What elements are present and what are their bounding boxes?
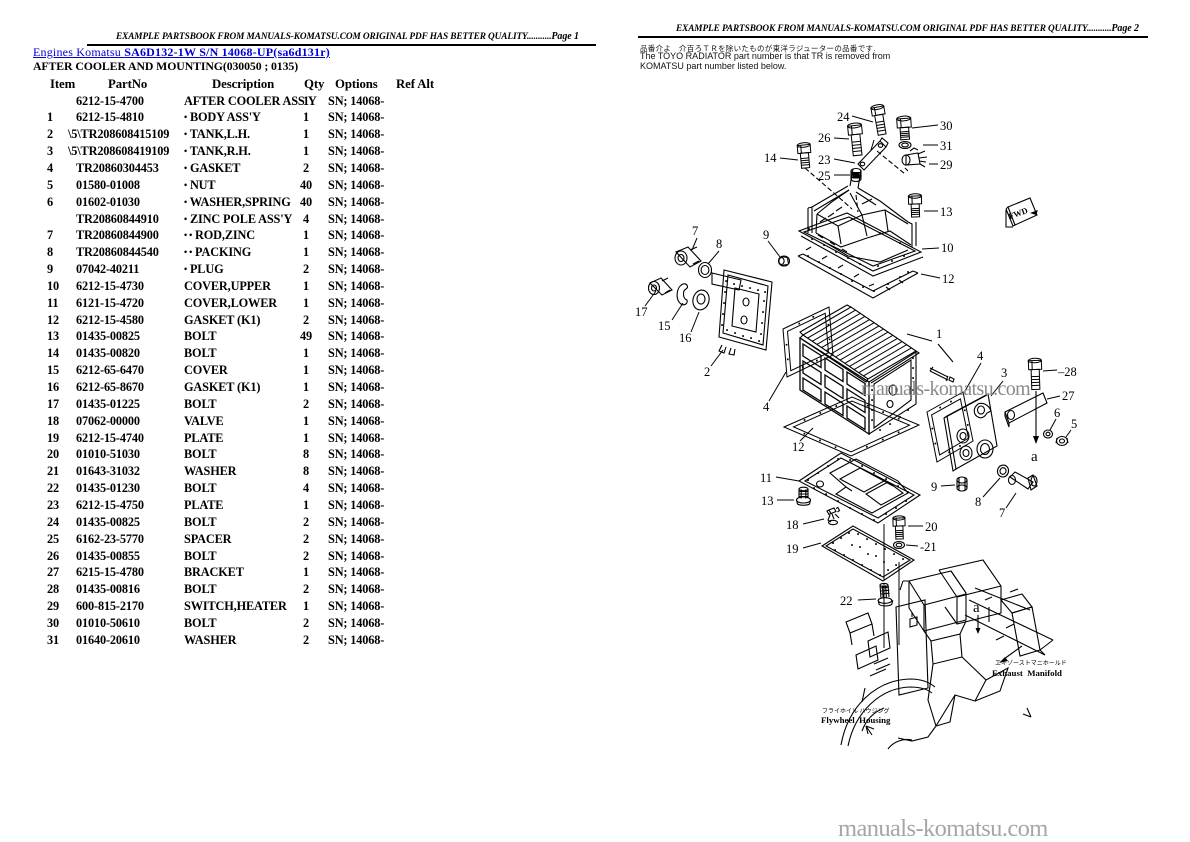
svg-text:manuals-komatsu.com: manuals-komatsu.com <box>861 378 1031 400</box>
svg-text:11: 11 <box>760 471 772 485</box>
svg-text:12: 12 <box>942 272 955 286</box>
svg-text:-21: -21 <box>920 540 937 554</box>
svg-text:7: 7 <box>999 506 1005 520</box>
svg-text:フライホイル ハウジング: フライホイル ハウジング <box>822 707 890 715</box>
svg-text:a: a <box>1031 449 1038 465</box>
svg-text:16: 16 <box>679 331 692 345</box>
svg-text:8: 8 <box>975 495 981 509</box>
svg-text:22: 22 <box>840 594 853 608</box>
svg-text:17: 17 <box>635 305 648 319</box>
svg-text:18: 18 <box>786 518 799 532</box>
svg-text:30: 30 <box>940 119 953 133</box>
svg-text:5: 5 <box>1071 417 1077 431</box>
svg-text:a: a <box>973 600 980 616</box>
svg-text:27: 27 <box>1062 389 1075 403</box>
svg-text:Flywheel Housing: Flywheel Housing <box>821 715 891 725</box>
svg-text:14: 14 <box>764 151 777 165</box>
svg-text:4: 4 <box>977 349 984 363</box>
svg-text:12: 12 <box>792 440 805 454</box>
svg-text:13: 13 <box>940 205 953 219</box>
svg-text:6: 6 <box>1054 406 1060 420</box>
svg-text:19: 19 <box>786 542 799 556</box>
svg-text:エキゾーストマニホールド: エキゾーストマニホールド <box>995 660 1067 667</box>
svg-text:1: 1 <box>936 327 942 341</box>
svg-text:26: 26 <box>818 131 831 145</box>
svg-text:FWD: FWD <box>1007 205 1029 221</box>
svg-text:manuals-komatsu.com: manuals-komatsu.com <box>838 815 1048 842</box>
svg-text:9: 9 <box>931 480 937 494</box>
svg-text:4: 4 <box>763 400 770 414</box>
svg-text:20: 20 <box>925 520 938 534</box>
svg-text:8: 8 <box>716 237 722 251</box>
svg-text:24: 24 <box>837 110 850 124</box>
svg-text:9: 9 <box>763 228 769 242</box>
svg-text:31: 31 <box>940 139 953 153</box>
svg-text:15: 15 <box>658 319 671 333</box>
svg-text:2: 2 <box>704 365 710 379</box>
svg-text:10: 10 <box>941 241 954 255</box>
svg-text:29: 29 <box>940 158 953 172</box>
svg-text:Exhaust Manifold: Exhaust Manifold <box>992 668 1062 678</box>
svg-text:13: 13 <box>761 494 774 508</box>
svg-text:–28: –28 <box>1057 365 1077 379</box>
svg-text:23: 23 <box>818 153 831 167</box>
svg-text:7: 7 <box>692 224 698 238</box>
